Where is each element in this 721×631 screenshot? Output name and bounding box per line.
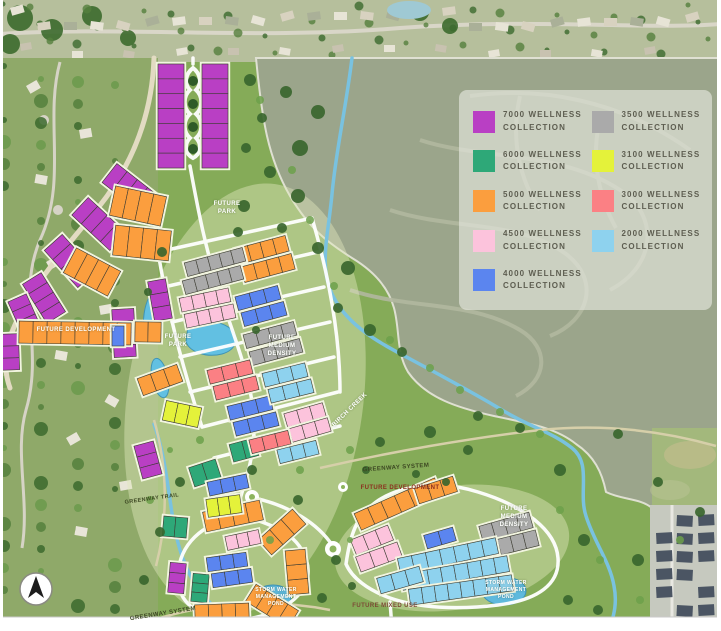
legend-item-2000: 2000 WELLNESS COLLECTION [592,221,703,261]
legend-swatch-4500 [473,230,495,252]
legend-label-4500: 4500 WELLNESS COLLECTION [503,228,582,253]
legend-item-6000: 6000 WELLNESS COLLECTION [473,142,584,182]
legend-swatch-2000 [592,230,614,252]
pond-north [387,1,431,19]
legend-swatch-5000 [473,190,495,212]
legend-label-3000: 3000 WELLNESS COLLECTION [622,189,701,214]
legend-item-4500: 4500 WELLNESS COLLECTION [473,221,584,261]
legend-swatch-3100 [592,150,614,172]
legend-item-3100: 3100 WELLNESS COLLECTION [592,142,703,182]
legend-swatch-3500 [592,111,614,133]
legend-item-7000: 7000 WELLNESS COLLECTION [473,102,584,142]
legend-swatch-4000 [473,269,495,291]
legend-item-3000: 3000 WELLNESS COLLECTION [592,181,703,221]
aerial-right-field [650,428,721,508]
legend-label-4000: 4000 WELLNESS COLLECTION [503,268,582,293]
legend-item-4000: 4000 WELLNESS COLLECTION [473,260,584,300]
legend: 7000 WELLNESS COLLECTION 6000 WELLNESS C… [459,90,712,310]
legend-item-5000: 5000 WELLNESS COLLECTION [473,181,584,221]
legend-label-5000: 5000 WELLNESS COLLECTION [503,189,582,214]
legend-swatch-7000 [473,111,495,133]
legend-label-2000: 2000 WELLNESS COLLECTION [622,228,701,253]
legend-label-6000: 6000 WELLNESS COLLECTION [503,149,582,174]
legend-label-7000: 7000 WELLNESS COLLECTION [503,109,582,134]
aerial-apartment-complex [650,505,721,628]
legend-swatch-3000 [592,190,614,212]
legend-item-3500: 3500 WELLNESS COLLECTION [592,102,703,142]
aerial-top-strip [0,0,721,62]
master-plan-map: FUTURE PARK FUTURE PARK FUTURE MEDIUM DE… [0,0,721,631]
legend-label-3500: 3500 WELLNESS COLLECTION [622,109,701,134]
legend-label-3100: 3100 WELLNESS COLLECTION [622,149,701,174]
compass-north-icon [18,571,54,607]
legend-swatch-6000 [473,150,495,172]
